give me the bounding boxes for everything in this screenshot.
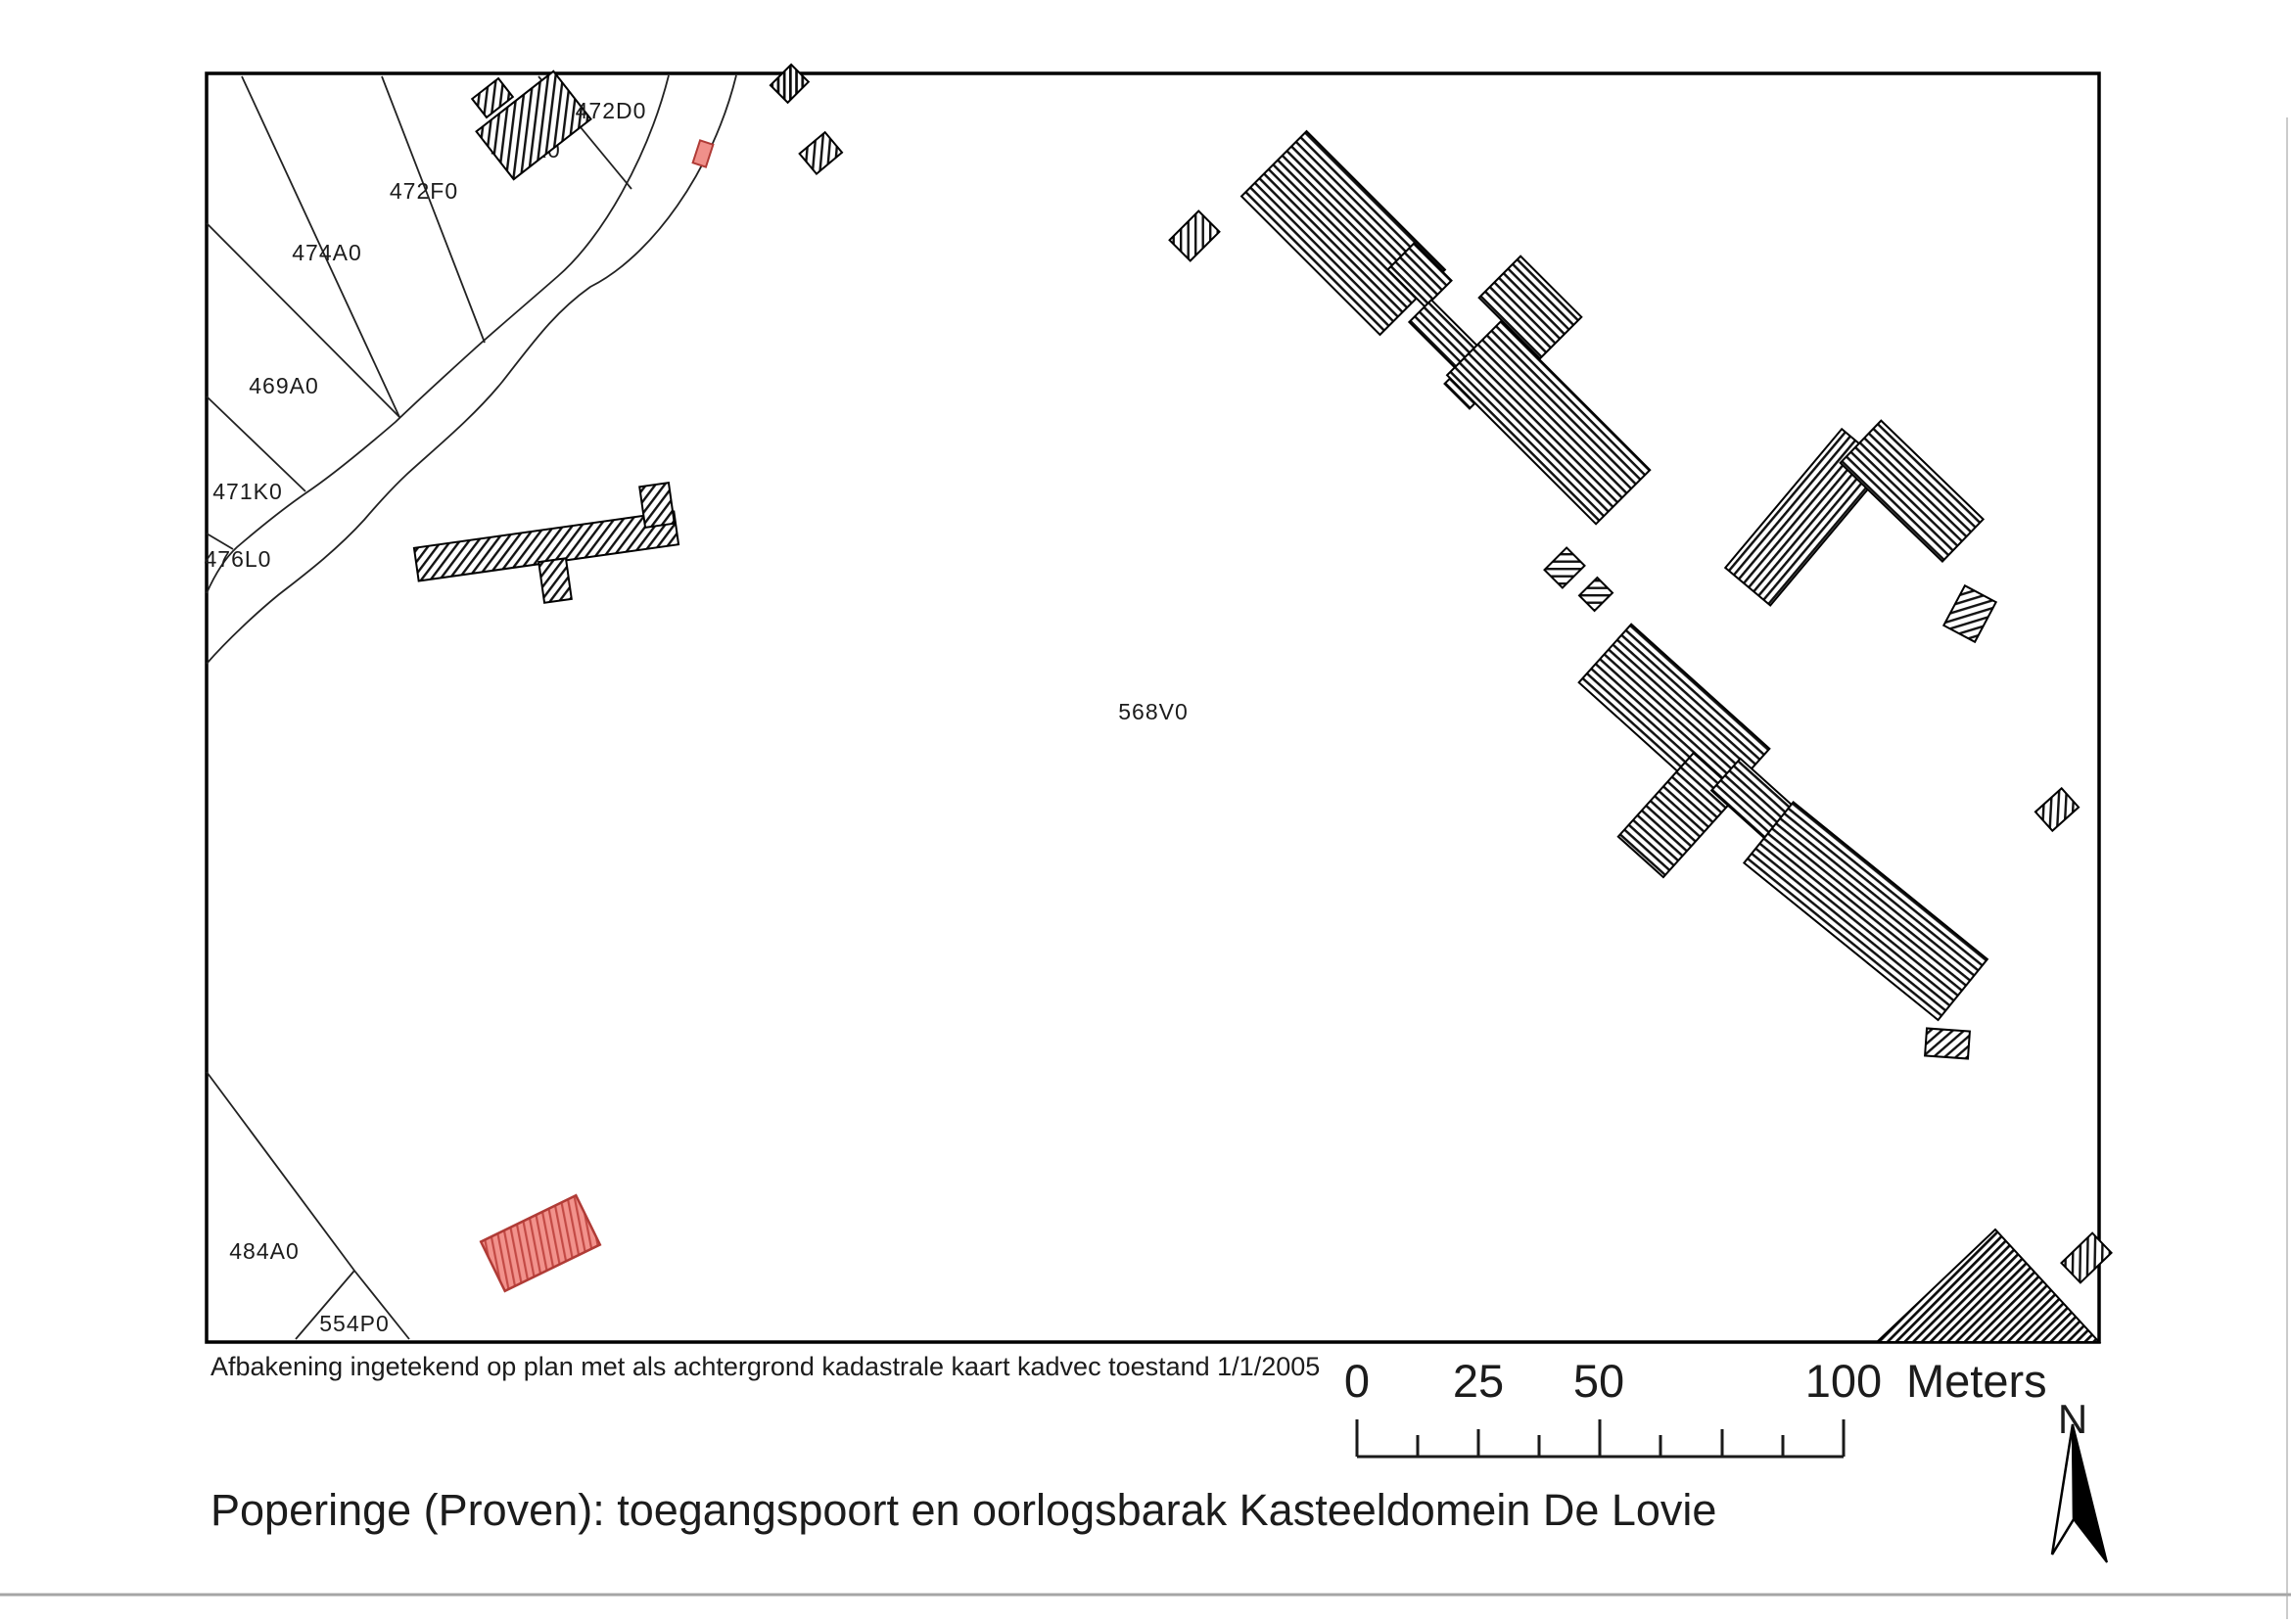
parcel-label-476L0: 476L0	[205, 546, 272, 572]
parcel-label-472F0: 472F0	[390, 178, 458, 204]
parcel-label-472D0: 472D0	[576, 98, 647, 123]
parcel-label-554P0: 554P0	[319, 1311, 390, 1336]
scale-unit-label: Meters	[1906, 1355, 2047, 1407]
parcel-label-484A0: 484A0	[229, 1238, 300, 1264]
scale-label-100: 100	[1805, 1355, 1882, 1407]
building-long-barrack-tab-top	[639, 483, 675, 528]
page-title: Poperinge (Proven): toegangspoort en oor…	[210, 1485, 1716, 1535]
map-canvas: 472K0	[0, 0, 2291, 1619]
building-small-south	[1925, 1028, 1970, 1058]
parcel-label-469A0: 469A0	[249, 373, 319, 398]
parcel-label-474A0: 474A0	[292, 240, 362, 265]
scale-label-0: 0	[1344, 1355, 1370, 1407]
scale-label-25: 25	[1453, 1355, 1504, 1407]
building-long-barrack-tab-bottom	[538, 558, 572, 602]
parcel-label-471K0: 471K0	[212, 479, 283, 504]
parcel-label-568V0: 568V0	[1118, 699, 1189, 724]
scanned-cadastral-map-page: 472K0	[0, 0, 2291, 1619]
scale-label-50: 50	[1573, 1355, 1624, 1407]
map-caption: Afbakening ingetekend op plan met als ac…	[210, 1352, 1320, 1381]
